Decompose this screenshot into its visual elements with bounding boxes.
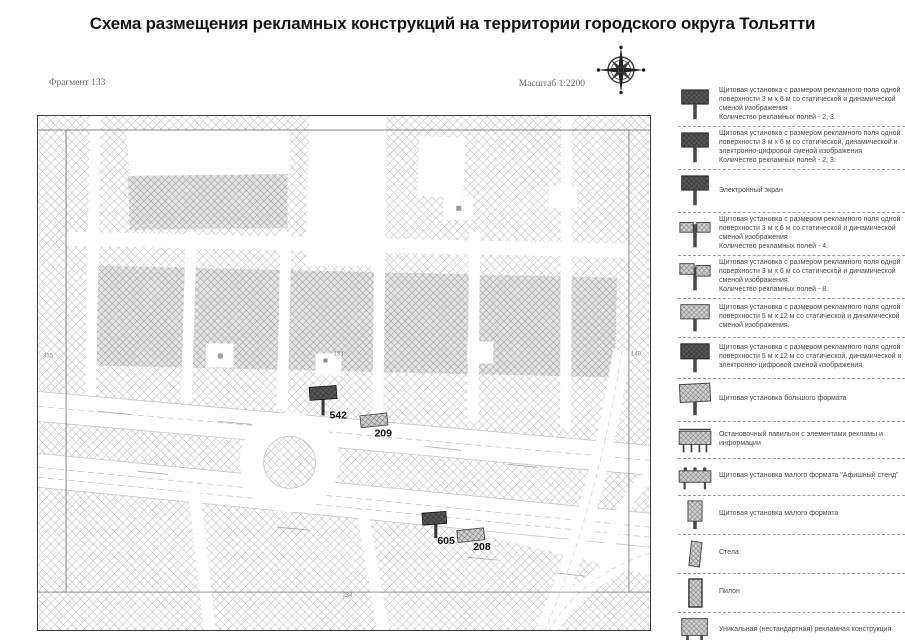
legend-item: Щитовая установка с размером рекламного …	[678, 127, 905, 170]
electronic-screen-icon	[678, 173, 712, 209]
map-canvas: 335 133 140 234 542 209 605 208	[38, 116, 650, 630]
legend-item-label: Пилон	[719, 588, 905, 597]
edge-number-center: 133	[334, 352, 345, 358]
scale-label: Масштаб 1:2200	[450, 79, 585, 89]
legend-item: Щитовая установка малого формата	[678, 496, 905, 535]
marker-label: 605	[437, 536, 455, 547]
legend-item: Пилон	[678, 574, 905, 613]
legend-item: Щитовая установка с размером рекламного …	[678, 338, 905, 379]
billboard-dark-icon	[678, 87, 712, 123]
legend-item: Щитовая установка большого формата	[678, 379, 905, 422]
edge-number-bottom: 234	[343, 593, 354, 599]
edge-number-left: 335	[43, 354, 54, 360]
scheme-page: Схема размещения рекламных конструкций н…	[0, 0, 905, 640]
stela-icon	[678, 538, 712, 570]
poster-stand-icon	[678, 462, 712, 492]
legend-item-label: Щитовая установка малого формата "Афишны…	[719, 472, 905, 481]
legend-item: Щитовая установка с размером рекламного …	[678, 256, 905, 299]
legend-item-label: Щитовая установка с размером рекламного …	[719, 87, 905, 123]
billboard-double-hatched-icon	[678, 217, 712, 251]
map-fragment: 335 133 140 234 542 209 605 208	[37, 115, 651, 631]
legend-item: Остановочный павильон с элементами рекла…	[678, 422, 905, 459]
legend-item-label: Щитовая установка с размером рекламного …	[719, 304, 905, 331]
legend-item-label: Щитовая установка с размером рекламного …	[719, 130, 905, 166]
legend-item: Уникальная (нестандартная) рекламная кон…	[678, 613, 905, 640]
legend-item-label: Остановочный павильон с элементами рекла…	[719, 431, 905, 449]
marker-label: 208	[473, 542, 491, 553]
billboard-large-dark-icon	[678, 341, 712, 375]
legend-item: Щитовая установка с размером рекламного …	[678, 84, 905, 127]
legend-item: Щитовая установка с размером рекламного …	[678, 213, 905, 256]
legend-item-label: Щитовая установка малого формата	[719, 510, 905, 519]
small-format-icon	[678, 499, 712, 531]
legend-item-label: Стела	[719, 549, 905, 558]
legend-item-label: Щитовая установка с размером рекламного …	[719, 216, 905, 252]
edge-number-right: 140	[631, 352, 642, 358]
fragment-label: Фрагмент 133	[49, 78, 105, 88]
unique-structure-icon	[678, 616, 712, 640]
page-title: Схема размещения рекламных конструкций н…	[0, 14, 905, 34]
map-dense-blocks	[94, 266, 617, 378]
legend-item: Электронный экран	[678, 170, 905, 213]
legend: Щитовая установка с размером рекламного …	[678, 84, 905, 640]
legend-item-label: Щитовая установка с размером рекламного …	[719, 344, 905, 371]
map-open-area	[126, 130, 290, 176]
billboard-double-hatched-icon	[678, 260, 712, 294]
billboard-xl-hatched-icon	[678, 382, 712, 418]
marker-label: 209	[374, 428, 392, 439]
legend-item-label: Уникальная (нестандартная) рекламная кон…	[719, 626, 905, 635]
bus-pavilion-icon	[678, 425, 712, 455]
billboard-large-hatched-icon	[678, 302, 712, 334]
legend-item-label: Щитовая установка большого формата	[719, 395, 905, 404]
legend-item: Стела	[678, 535, 905, 574]
marker-label: 542	[330, 410, 348, 421]
legend-item: Щитовая установка с размером рекламного …	[678, 299, 905, 338]
pylon-icon	[678, 577, 712, 609]
compass-rose-icon	[596, 44, 646, 96]
legend-item-label: Электронный экран	[719, 187, 905, 196]
billboard-dark-icon	[678, 130, 712, 166]
legend-item-label: Щитовая установка с размером рекламного …	[719, 259, 905, 295]
legend-item: Щитовая установка малого формата "Афишны…	[678, 459, 905, 496]
